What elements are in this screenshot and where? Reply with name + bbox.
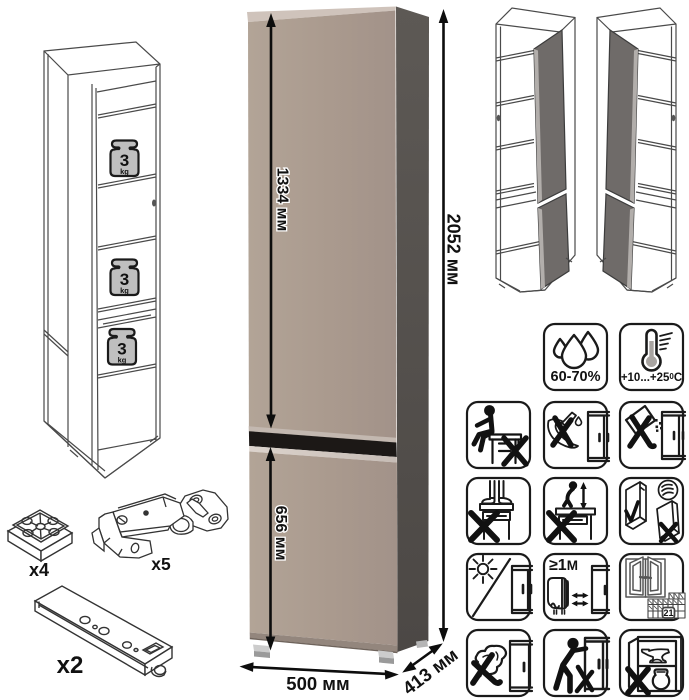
svg-text:500 мм: 500 мм xyxy=(286,673,349,694)
svg-text:x5: x5 xyxy=(151,554,171,574)
svg-text:60-70%: 60-70% xyxy=(551,369,601,385)
svg-text:2052 мм: 2052 мм xyxy=(444,214,464,286)
svg-text:656 мм: 656 мм xyxy=(272,506,289,561)
svg-text:1334 мм: 1334 мм xyxy=(274,168,291,232)
svg-text:≥1M: ≥1M xyxy=(549,557,578,574)
svg-text:+10...+250C: +10...+250C xyxy=(621,372,682,384)
svg-text:x4: x4 xyxy=(29,560,49,580)
svg-text:x2: x2 xyxy=(57,652,84,679)
svg-text:21: 21 xyxy=(663,608,673,618)
